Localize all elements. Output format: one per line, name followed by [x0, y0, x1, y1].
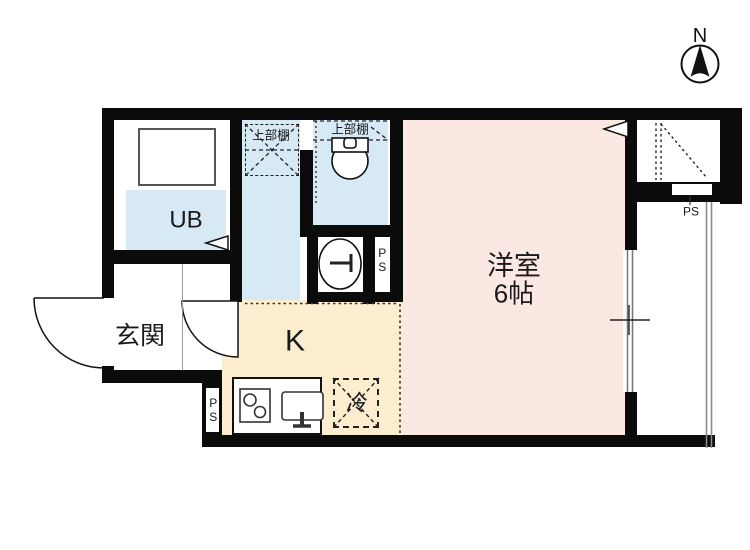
western-room-label: 洋室: [487, 252, 541, 280]
north-compass-icon: N: [682, 25, 719, 83]
entrance-label: 玄関: [115, 323, 165, 349]
wall-basin-bottom: [307, 292, 403, 302]
bathtub-icon: [138, 128, 216, 186]
window-opening: [623, 250, 639, 392]
refrigerator-label: 冷: [346, 391, 368, 414]
pipe-space-balcony-slot: [672, 184, 712, 195]
compass-north-label: N: [693, 25, 707, 47]
wall-top: [102, 108, 742, 120]
washbasin-nook: [318, 237, 363, 292]
upper-shelf-toilet-label: 上部棚: [331, 123, 369, 136]
closet-dashed-lines: [656, 123, 707, 180]
wall-room-right-upper: [625, 120, 637, 250]
wall-ub-bottom: [102, 250, 242, 264]
wall-room-right-lower: [625, 392, 637, 447]
floor-plan: N UB 玄関 K 洋室 6帖 上部棚 上部棚 冷 PS PS PS: [0, 0, 750, 550]
kitchen-label: K: [285, 325, 305, 357]
pipe-space-balcony-label: PS: [683, 206, 699, 219]
western-room-size-label: 6帖: [494, 280, 534, 307]
pipe-space-wash-label: PS: [376, 246, 389, 274]
wall-room-left: [390, 120, 403, 302]
wall-washroom-left: [230, 120, 242, 302]
wall-toilet-bottom: [307, 225, 403, 237]
wall-toilet-left: [300, 150, 313, 237]
pipe-space-kitchen-label: PS: [207, 396, 220, 424]
balcony-railing: [707, 202, 712, 448]
upper-shelf-left-label: 上部棚: [252, 129, 290, 142]
kitchen-counter: [232, 377, 322, 435]
entrance-step-line: [182, 264, 183, 370]
wall-left-upper: [102, 108, 114, 298]
unit-bath-label: UB: [169, 207, 202, 232]
wall-bottom: [202, 435, 715, 447]
entrance-door-arc: [34, 298, 104, 368]
